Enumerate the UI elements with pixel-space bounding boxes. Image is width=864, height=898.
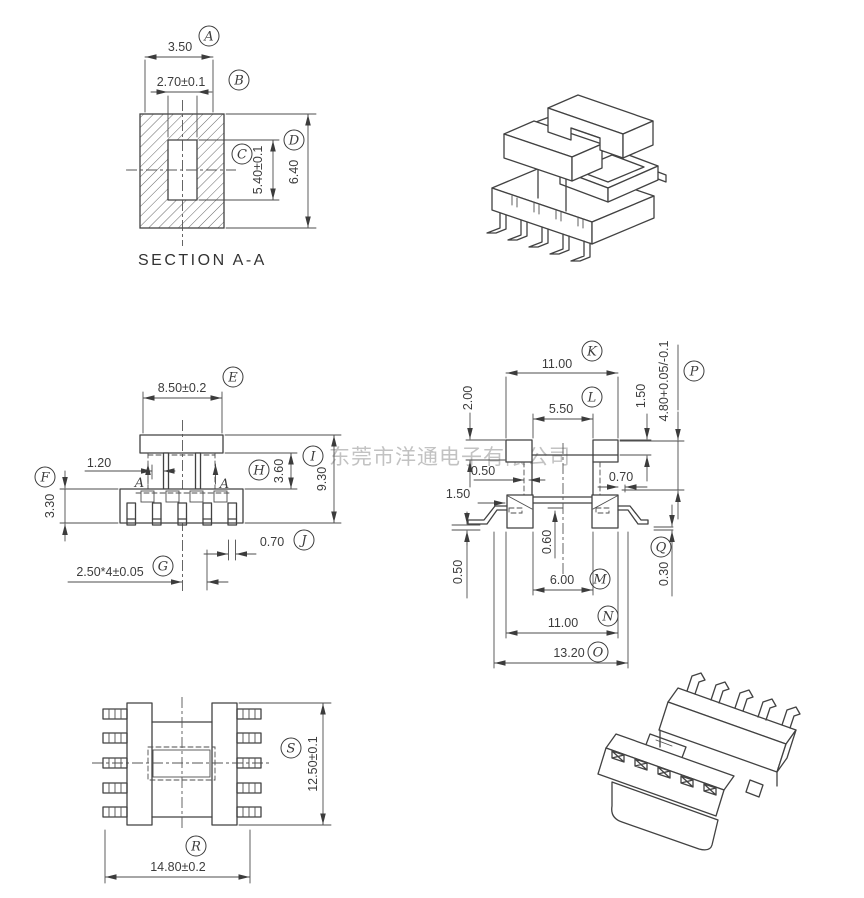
dim-150top-value: 1.50	[634, 384, 648, 408]
iso-view-bottom	[598, 673, 800, 850]
badge-i-letter: I	[309, 450, 316, 465]
right-gullwing-lead	[618, 506, 648, 524]
badge-l-letter: L	[587, 391, 597, 406]
badge-m-letter: M	[592, 573, 607, 588]
core-hole	[153, 750, 210, 777]
dim-070-value: 0.70	[609, 470, 633, 484]
right-flange	[212, 703, 237, 825]
dim-120-value: 1.20	[87, 456, 111, 470]
side-view: 11.00 K 5.50 L 2.00 1.50 4.80+0.05/-0.1 …	[446, 340, 704, 668]
dim-g-value: 2.50*4±0.05	[76, 565, 143, 579]
right-flange	[593, 440, 618, 462]
badge-q-letter: Q	[656, 541, 667, 556]
dim-150left-value: 1.50	[446, 487, 470, 501]
hidden-edges	[148, 453, 215, 489]
badge-n-letter: N	[601, 610, 614, 625]
badge-k-letter: K	[586, 345, 598, 360]
badge-r-letter: R	[190, 840, 201, 855]
company-watermark: 东莞市洋通电子有限公司	[329, 446, 571, 469]
badge-g-letter: G	[158, 560, 168, 575]
dim-200-value: 2.00	[461, 386, 475, 410]
left-flange	[506, 440, 532, 462]
iso-view-top	[487, 95, 666, 261]
badge-j-letter: J	[298, 534, 307, 549]
section-marker-a-left: A	[134, 476, 144, 491]
badge-f-letter: F	[39, 471, 50, 486]
badge-b-letter: B	[233, 74, 244, 89]
base-body	[120, 489, 243, 523]
dim-s-value: 12.50±0.1	[306, 736, 320, 792]
dim-c-value: 5.40±0.1	[251, 146, 265, 195]
mount-foot	[746, 780, 763, 797]
top-view: 12.50±0.1 S 14.80±0.2 R	[92, 697, 331, 883]
dim-o-value: 13.20	[553, 646, 584, 660]
dim-060-value: 0.60	[540, 530, 554, 554]
winding-post	[196, 453, 201, 489]
badge-h-letter: H	[252, 464, 265, 479]
dim-050bot-value: 0.50	[451, 560, 465, 584]
drawing-canvas: 东莞市洋通电子有限公司 3.50 A 2.70±0.1 B 5.40±0.1 C…	[0, 0, 864, 898]
dim-r-value: 14.80±0.2	[150, 860, 206, 874]
dim-m-value: 6.00	[550, 573, 574, 587]
dim-h-value: 3.60	[272, 459, 286, 483]
centerlines	[92, 697, 272, 830]
section-marker-a-right: A	[219, 477, 229, 492]
dim-e-value: 8.50±0.2	[158, 381, 207, 395]
core-hole-hidden	[148, 747, 215, 780]
dim-q-value: 0.30	[657, 562, 671, 586]
badge-d-letter: D	[288, 134, 300, 149]
badge-s-letter: S	[287, 742, 296, 757]
dim-i-value: 9.30	[315, 467, 329, 491]
dim-l-value: 5.50	[549, 402, 573, 416]
dim-n-value: 11.00	[548, 616, 578, 630]
badge-p-letter: P	[689, 365, 699, 380]
dim-d-value: 6.40	[287, 160, 301, 184]
dim-050mid-value: 0.50	[471, 464, 495, 478]
dim-p-value: 4.80+0.05/-0.1	[657, 340, 671, 421]
dim-k-value: 11.00	[542, 357, 572, 371]
top-flange	[140, 435, 223, 453]
left-pin-block	[507, 495, 533, 528]
dim-f-value: 3.30	[43, 494, 57, 518]
dim-j-value: 0.70	[260, 535, 284, 549]
engineering-drawing-page: 东莞市洋通电子有限公司 3.50 A 2.70±0.1 B 5.40±0.1 C…	[0, 0, 864, 898]
mount-foot	[658, 172, 666, 182]
badge-c-letter: C	[237, 148, 247, 163]
badge-o-letter: O	[593, 646, 604, 661]
dim-a-value: 3.50	[168, 40, 192, 54]
section-title: SECTION A-A	[138, 252, 267, 269]
badge-a-letter: A	[203, 30, 213, 45]
left-gullwing-lead	[468, 506, 507, 524]
left-flange	[127, 703, 152, 825]
seating-plane-lines	[452, 525, 673, 530]
section-view: 3.50 A 2.70±0.1 B 5.40±0.1 C 6.40 D SECT…	[126, 26, 316, 269]
badge-e-letter: E	[227, 371, 238, 386]
dim-b-value: 2.70±0.1	[157, 75, 206, 89]
front-view: A A 8.50±0.2 E 1.20 3.60 H 9.30 I 3.30 F	[35, 367, 341, 592]
